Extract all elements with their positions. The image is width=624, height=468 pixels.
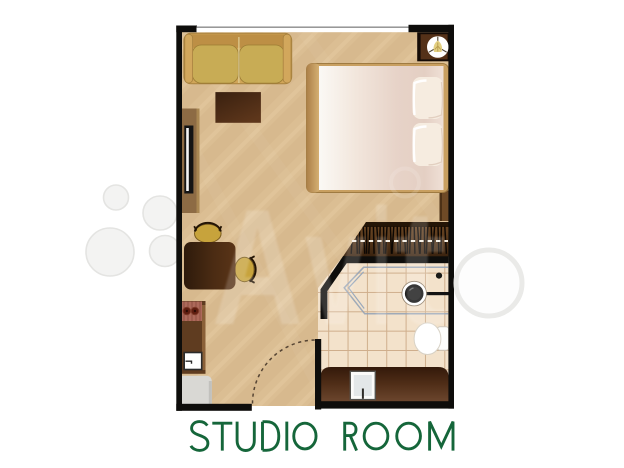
svg-text:i: i bbox=[371, 175, 392, 359]
svg-text:v: v bbox=[305, 175, 366, 359]
svg-text:A: A bbox=[212, 175, 303, 359]
svg-text:t: t bbox=[393, 175, 447, 359]
